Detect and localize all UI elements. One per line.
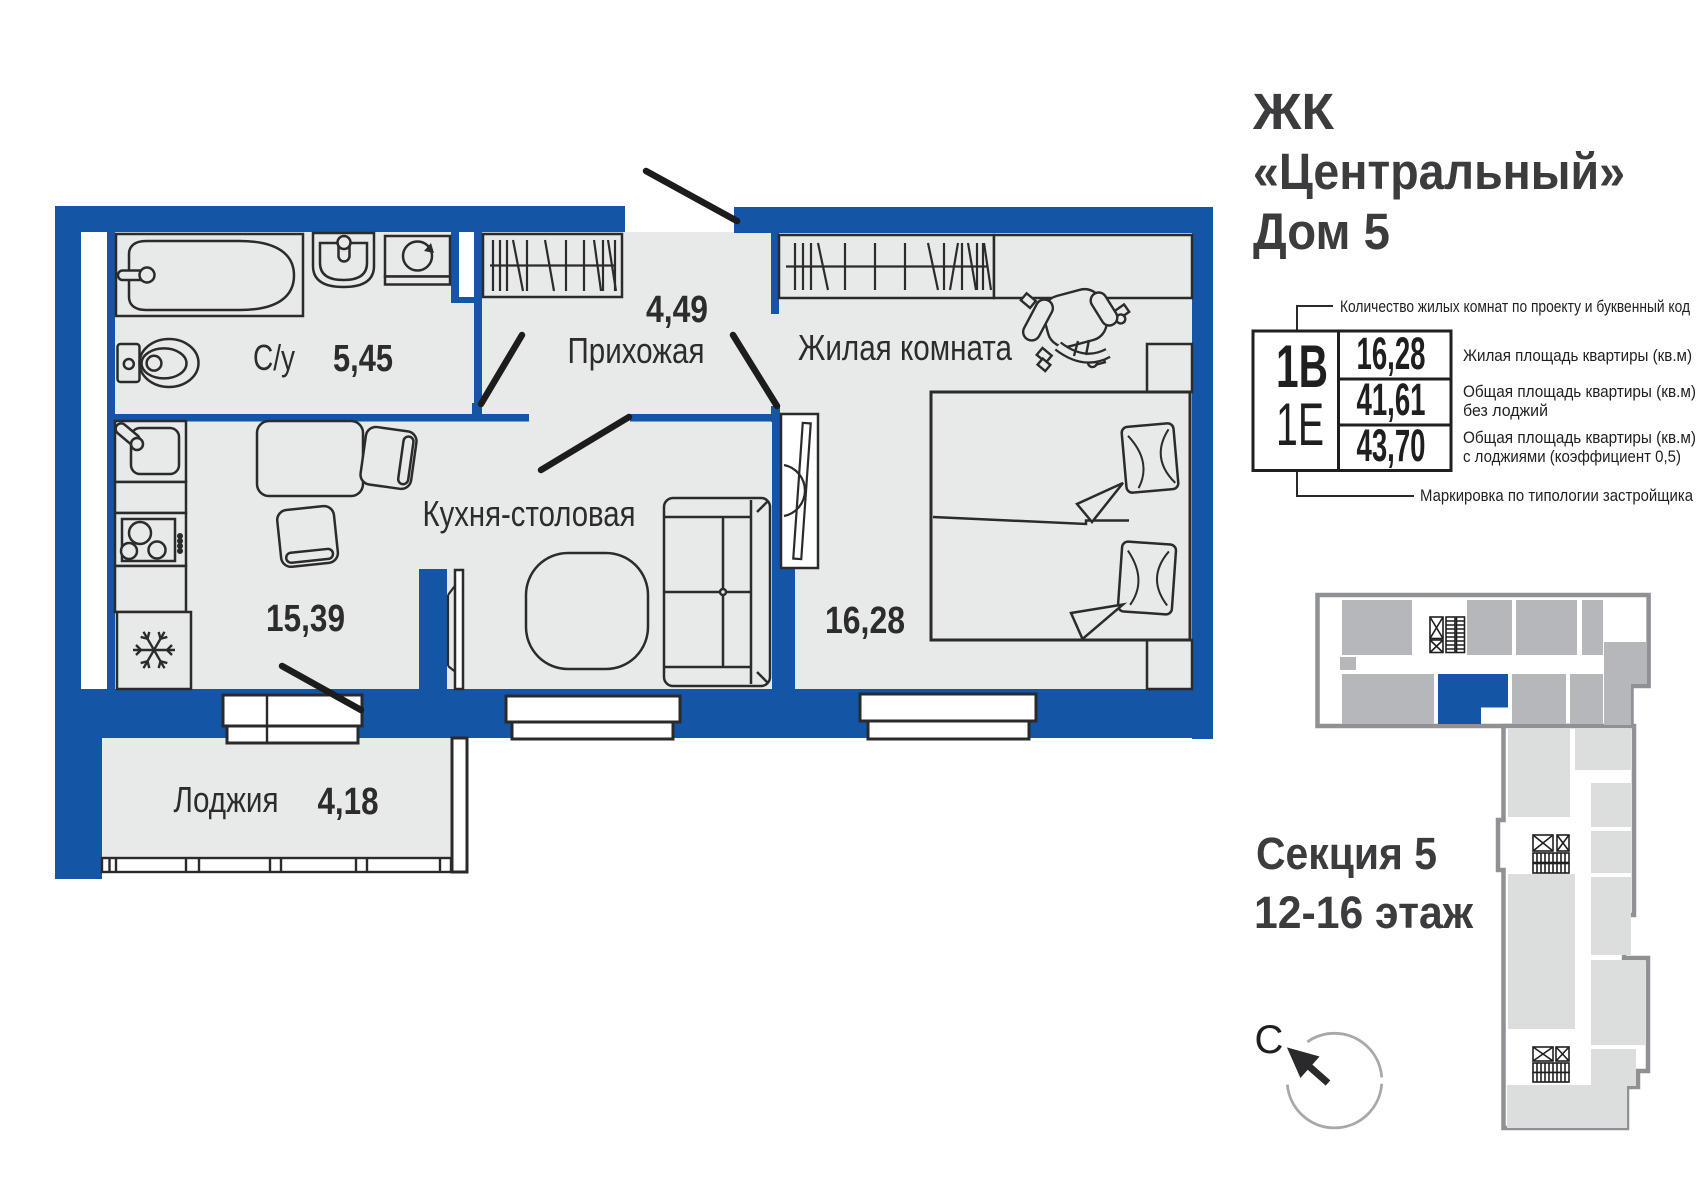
svg-text:16,28: 16,28 — [825, 600, 905, 642]
svg-text:Количество жилых комнат по про: Количество жилых комнат по проекту и бук… — [1340, 297, 1690, 316]
svg-text:15,39: 15,39 — [266, 598, 345, 640]
svg-text:«Центральный»: «Центральный» — [1253, 143, 1625, 200]
svg-text:Прихожая: Прихожая — [568, 330, 705, 371]
svg-text:С/у: С/у — [253, 337, 295, 378]
svg-text:Жилая площадь квартиры (кв.м): Жилая площадь квартиры (кв.м) — [1463, 346, 1692, 365]
svg-text:Общая площадь квартиры (кв.м): Общая площадь квартиры (кв.м) — [1463, 428, 1696, 447]
svg-text:Дом 5: Дом 5 — [1253, 203, 1390, 260]
svg-text:12-16 этаж: 12-16 этаж — [1254, 887, 1474, 938]
svg-text:Лоджия: Лоджия — [174, 779, 279, 820]
svg-text:ЖК: ЖК — [1252, 83, 1335, 140]
svg-text:4,49: 4,49 — [646, 289, 708, 331]
svg-text:Секция 5: Секция 5 — [1256, 828, 1437, 879]
svg-text:Жилая комната: Жилая комната — [798, 327, 1013, 368]
svg-text:Кухня-столовая: Кухня-столовая — [423, 493, 636, 534]
svg-text:1В: 1В — [1276, 333, 1328, 400]
svg-text:41,61: 41,61 — [1357, 374, 1426, 425]
svg-text:16,28: 16,28 — [1357, 328, 1426, 379]
svg-text:Маркировка по типологии зас: Маркировка по типологии застройщика — [1420, 486, 1693, 505]
svg-text:1Е: 1Е — [1276, 391, 1324, 458]
svg-text:5,45: 5,45 — [333, 338, 393, 380]
svg-text:С: С — [1255, 1018, 1284, 1062]
svg-text:Общая площадь квартиры (кв.м): Общая площадь квартиры (кв.м) — [1463, 382, 1696, 401]
svg-text:43,70: 43,70 — [1357, 420, 1426, 471]
svg-text:с лоджиями (коэффициент 0,5): с лоджиями (коэффициент 0,5) — [1463, 447, 1681, 466]
svg-text:без лоджий: без лоджий — [1463, 401, 1548, 420]
svg-text:4,18: 4,18 — [318, 781, 379, 823]
